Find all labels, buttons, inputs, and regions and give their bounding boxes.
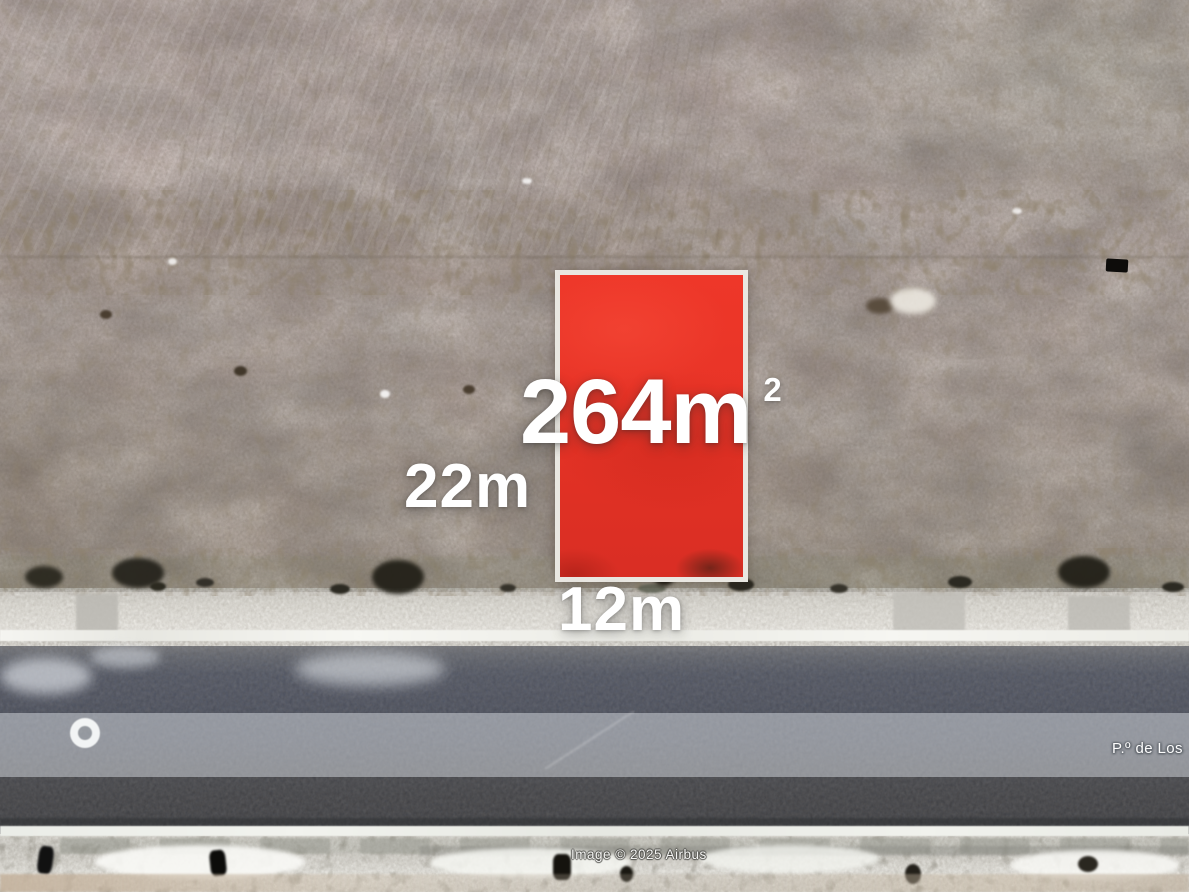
plot-overlay[interactable] [555, 270, 748, 582]
sidewalk-upper [0, 588, 1189, 646]
satellite-map[interactable]: 264m2 22m 12m P.º de Los Image © 2025 Ai… [0, 0, 1189, 892]
sidewalk-lower [0, 834, 1189, 892]
road-light-band [0, 713, 1189, 777]
